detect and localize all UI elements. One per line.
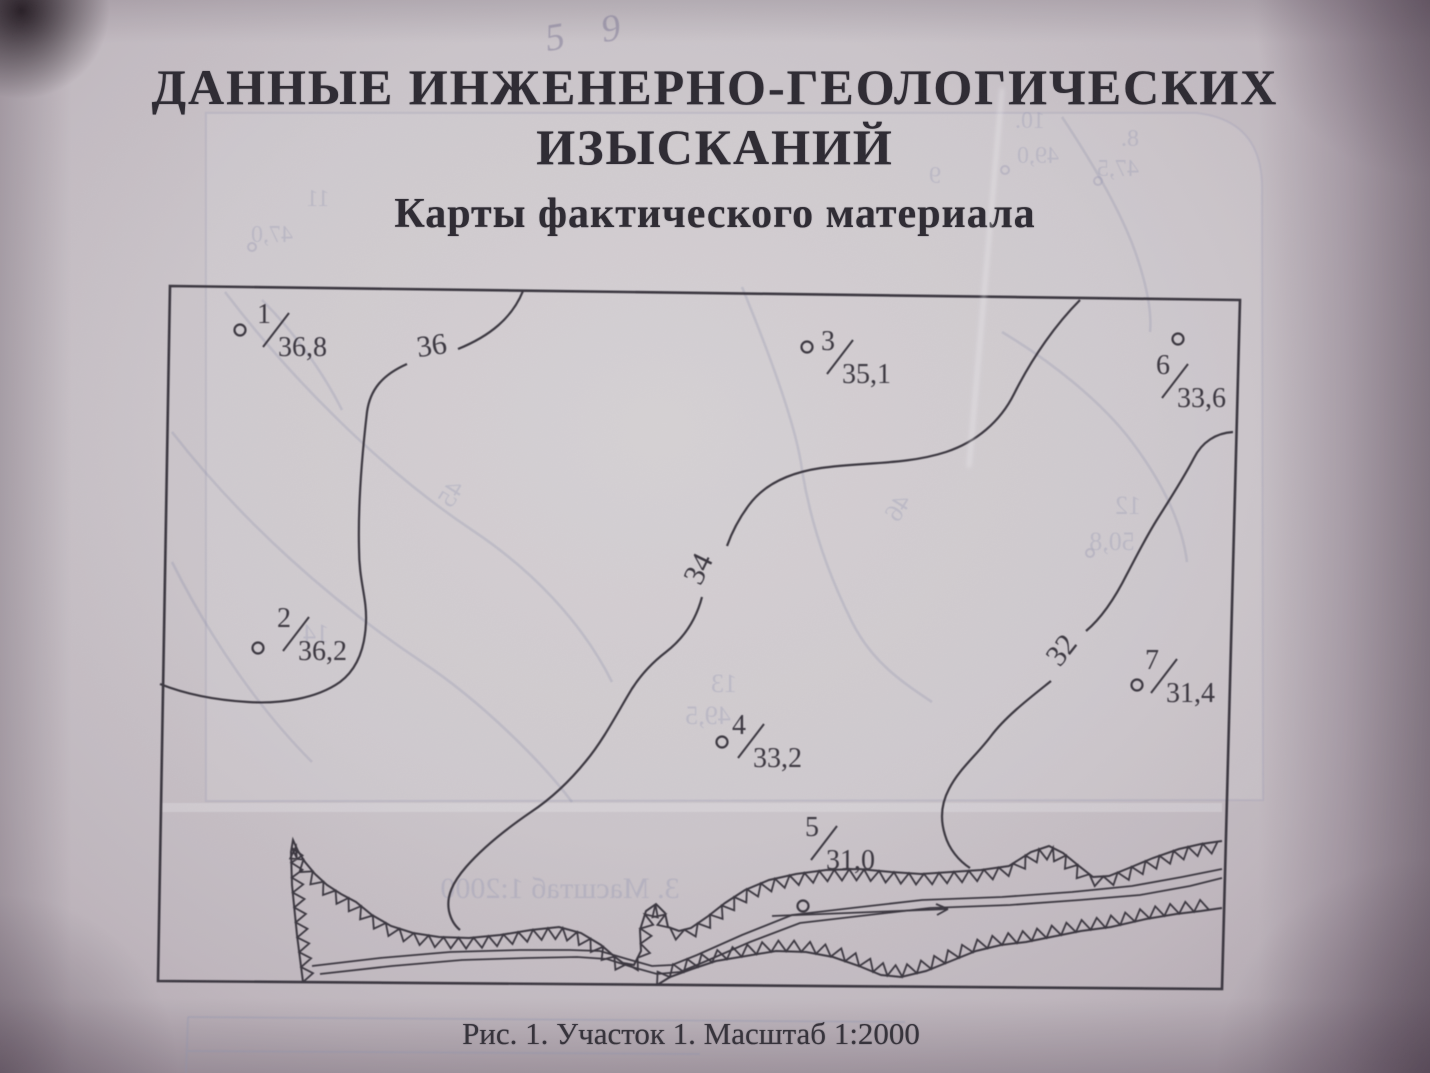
borehole-number: 6 <box>1156 350 1170 381</box>
ravine-south-hachures <box>657 900 1209 985</box>
borehole-5: 531,0 <box>798 812 876 912</box>
page-title-line1: ДАННЫЕ ИНЖЕНЕРНО-ГЕОЛОГИЧЕСКИХ <box>0 58 1430 116</box>
borehole-number: 5 <box>805 812 819 843</box>
borehole-number: 1 <box>257 299 271 330</box>
borehole-elevation: 31,4 <box>1166 678 1215 709</box>
borehole-elevation: 36,2 <box>298 636 347 667</box>
photographed-document-page: 10.49,08.47,591147,01250,81349,51446453.… <box>0 0 1430 1073</box>
ravine-north-edge <box>291 840 1222 982</box>
figure-caption: Рис. 1. Участок 1. Масштаб 1:2000 <box>0 1016 1430 1052</box>
borehole-number: 2 <box>277 603 291 634</box>
page-subtitle: Карты фактического материала <box>0 190 1430 238</box>
borehole-elevation: 33,2 <box>753 743 802 774</box>
borehole-number: 7 <box>1145 645 1159 676</box>
borehole-elevation: 36,8 <box>278 332 327 363</box>
ghost-text: 13 <box>711 669 737 698</box>
borehole-number: 4 <box>732 710 746 741</box>
borehole-elevation: 33,6 <box>1177 383 1226 414</box>
borehole-number: 3 <box>821 326 835 357</box>
contour-label-36: 36 <box>415 327 449 364</box>
borehole-elevation: 31,0 <box>826 845 875 876</box>
page-title-line2: ИЗЫСКАНИЙ <box>0 118 1430 176</box>
ghost-sheet-bottom-band <box>160 803 1222 812</box>
borehole-elevation: 35,1 <box>842 359 891 390</box>
borehole-marker <box>798 901 809 912</box>
ghost-text: 49,5 <box>685 701 731 730</box>
ghost-text: 12 <box>1115 491 1141 520</box>
ghost-text: 3. Масштаб 1:2000 <box>440 872 679 905</box>
ghost-text: 50,8 <box>1089 527 1135 556</box>
ravine-north-hachures <box>290 842 1217 982</box>
